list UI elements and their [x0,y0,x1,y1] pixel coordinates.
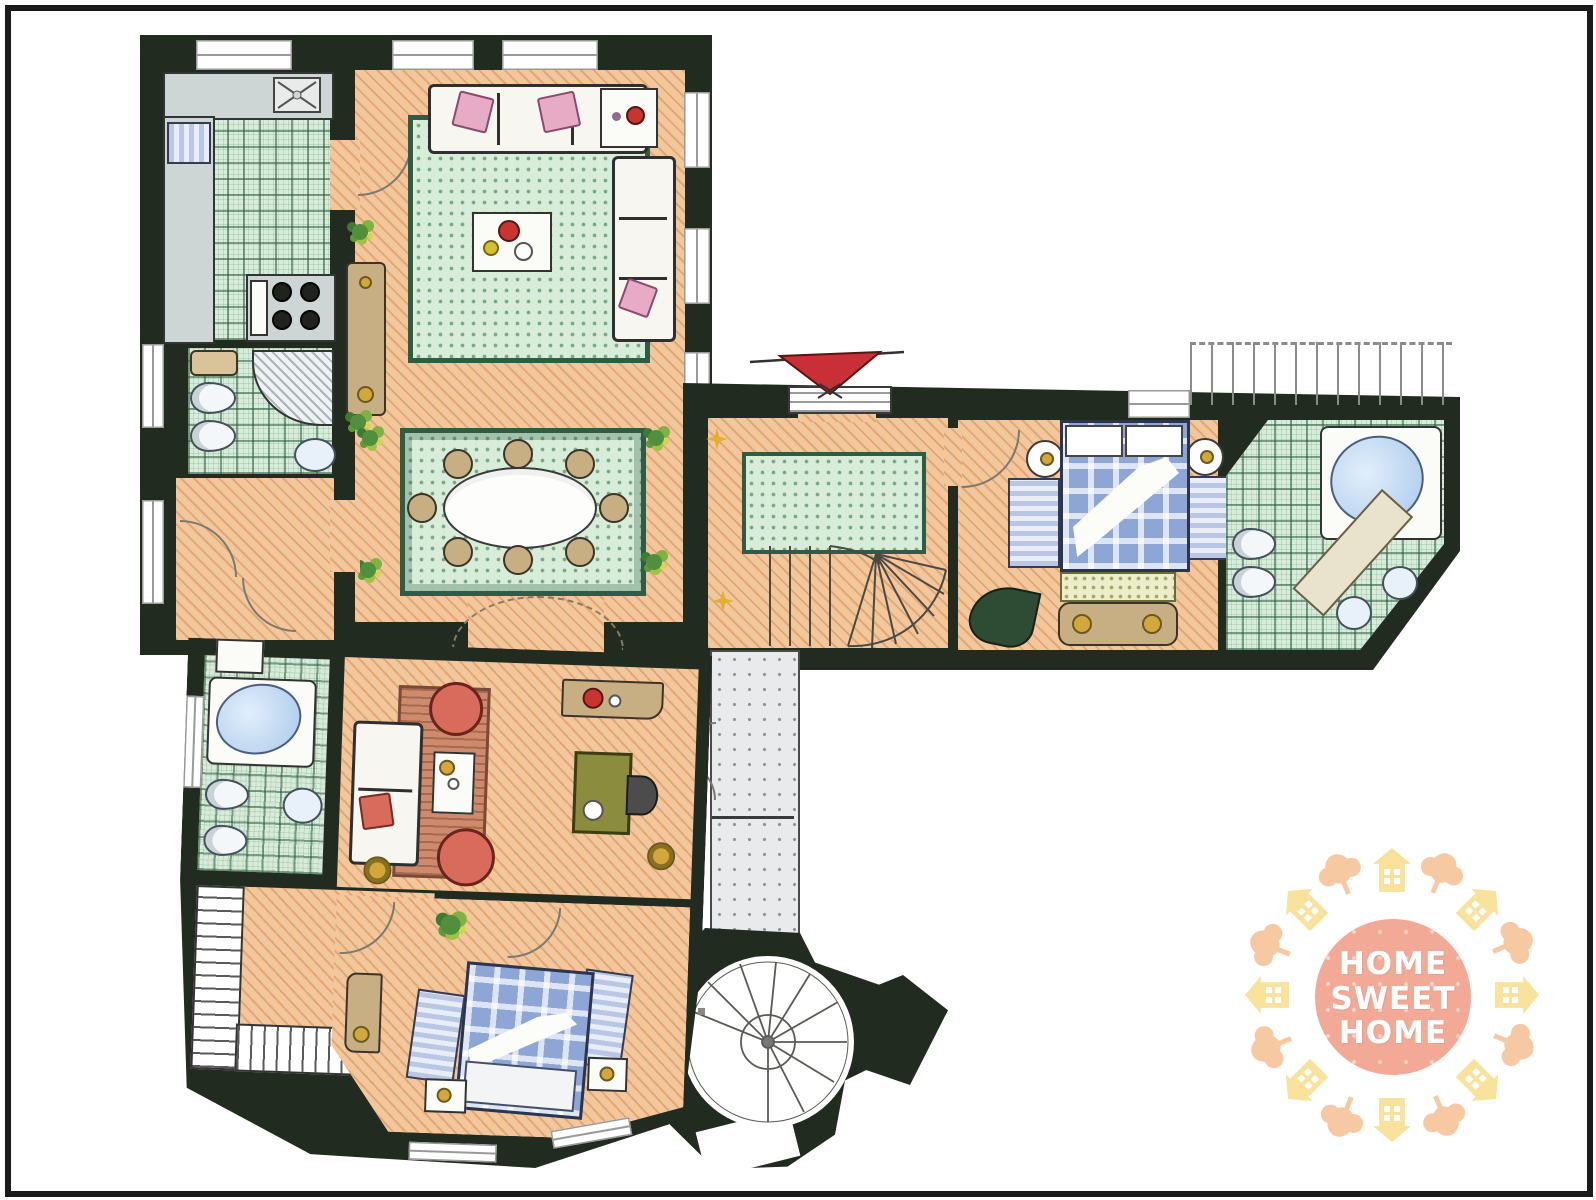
window [142,344,164,428]
dining-table [443,467,597,549]
window [502,40,598,70]
dining-chair [407,493,437,523]
sofa-cushion-line [619,217,667,220]
logo-house-icon [1495,976,1539,1014]
balcony-railing [1190,342,1452,405]
window [1128,390,1190,418]
bed-pillow [1125,425,1183,457]
double-bed [1060,420,1190,572]
logo-tree-icon [1500,1029,1538,1064]
bed-sheet-fold [1073,457,1179,557]
logo-text-line: SWEET [1315,982,1471,1017]
window [142,500,164,604]
bed-folded-linen [462,1061,577,1113]
winder-staircase [748,538,948,650]
window [196,40,292,70]
logo-house-icon [1275,1054,1333,1112]
nightstand-knob-icon [1040,452,1054,466]
coffee-table-plate-icon [514,242,533,261]
logo-tree-icon [1428,1102,1464,1140]
foot-of-bed-rug [1060,572,1176,602]
logo-tree-icon [1246,926,1284,961]
bath-shelf [190,350,238,376]
dining-chair [503,545,533,575]
console-knob-icon [357,386,374,403]
logo-house-icon [1373,848,1411,892]
logo-tree-icon [1247,1031,1285,1067]
logo-house-icon [1275,878,1333,936]
floor-plan-canvas: HOME SWEET HOME [0,0,1596,1200]
stove-burner-icon [300,282,320,302]
corridor-threshold-line [712,816,794,819]
window [684,92,710,168]
wing-c-group [170,638,712,1176]
dining-chair [443,449,473,479]
plant-icon [360,562,376,578]
washbasin-icon [294,438,336,472]
plant-icon [646,554,662,570]
plant-icon [648,430,664,446]
bath-side-table [215,639,264,675]
console-knob-icon [359,276,372,289]
spiral-staircase [682,956,854,1128]
sofa-cushion-line [619,277,667,280]
window [183,696,204,789]
logo-text-line: HOME [1315,1016,1471,1051]
logo-circle: HOME SWEET HOME [1315,919,1471,1075]
stove-burner-icon [272,310,292,330]
side-table-dish-icon [612,112,621,121]
kitchen-door-opening [330,140,360,210]
dining-chair [503,439,533,469]
window [408,1142,497,1163]
dining-chair [565,537,595,567]
gallery-corridor-floor [710,650,800,956]
plant-icon [362,430,378,446]
sofa-pillow [358,792,394,830]
logo-tree-icon [1499,924,1537,960]
logo-house-icon [1373,1098,1411,1142]
logo-tree-icon [1321,850,1357,888]
window [684,228,710,304]
stove-burner-icon [300,310,320,330]
logo-tree-icon [1426,849,1461,887]
bench-knob-icon [1072,614,1092,634]
entry-awning [742,340,912,402]
stove-control-panel [250,280,268,336]
sofa-cushion-line [497,93,500,145]
logo-text-line: HOME [1315,947,1471,982]
dining-chair [599,493,629,523]
vanity-sink-icon [1336,596,1372,630]
bedside-runner-rug [1186,476,1230,560]
home-sweet-home-logo: HOME SWEET HOME [1247,845,1537,1145]
kitchen-drainer-icon [167,122,211,164]
stove-burner-icon [272,282,292,302]
bench-knob-icon [1142,614,1162,634]
side-table-bowl-icon [626,106,645,125]
window [392,40,474,70]
plant-icon [352,224,368,240]
bedside-runner-rug [1008,478,1060,568]
vanity-sink-icon [1382,566,1418,600]
sofa-pillow [537,90,582,133]
hall-dining-opening [330,500,360,572]
dining-chair [565,449,595,479]
desk [572,751,633,835]
coffee-table-dish-icon [483,240,499,256]
bedroom-1-door-opening [944,428,962,486]
dining-chair [443,537,473,567]
logo-house-icon [1245,976,1289,1014]
double-bed-2 [454,961,594,1120]
plant-icon [350,414,366,430]
logo-tree-icon [1323,1103,1358,1141]
nightstand-knob-icon [1200,450,1214,464]
kitchen-sink-icon [272,76,322,114]
bed-pillow [1065,425,1123,457]
coffee-table-bowl-icon [498,220,520,242]
